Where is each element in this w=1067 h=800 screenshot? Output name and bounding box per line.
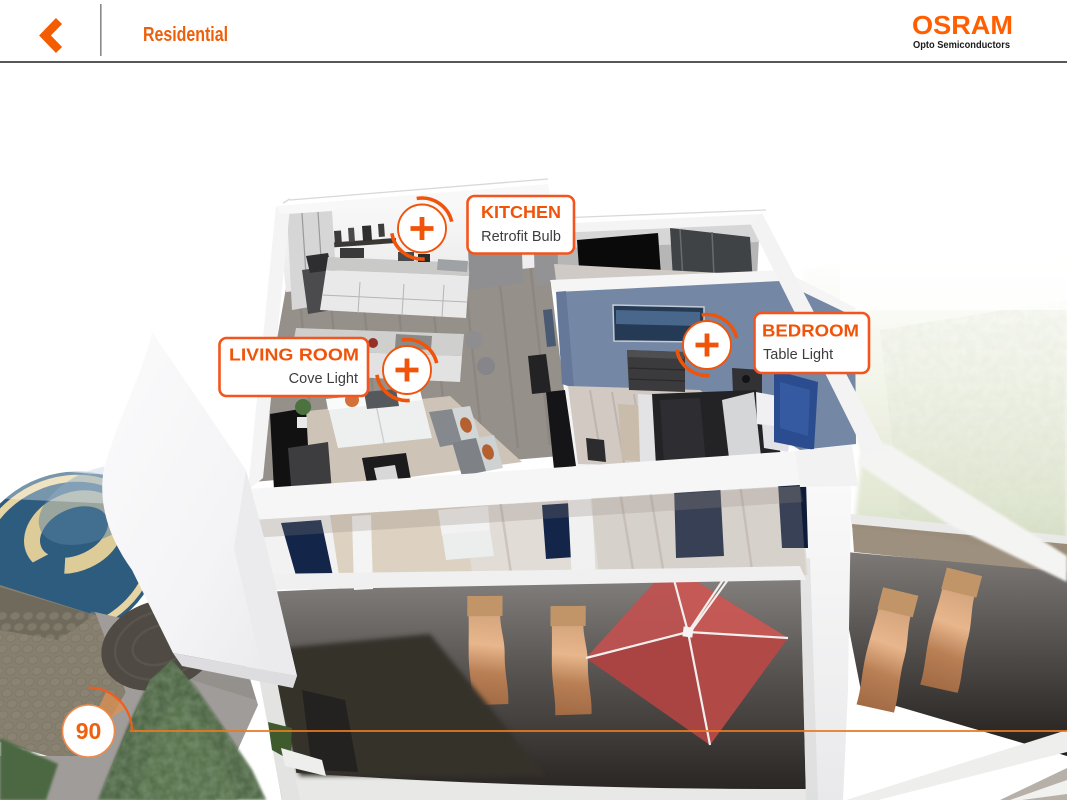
svg-text:Cove Light: Cove Light	[289, 371, 358, 387]
svg-text:Opto Semiconductors: Opto Semiconductors	[913, 39, 1010, 51]
svg-text:KITCHEN: KITCHEN	[481, 202, 561, 222]
svg-text:90: 90	[76, 718, 102, 744]
svg-text:LIVING ROOM: LIVING ROOM	[229, 345, 359, 365]
svg-text:BEDROOM: BEDROOM	[762, 321, 859, 341]
svg-text:Table Light: Table Light	[763, 347, 833, 363]
svg-text:Residential: Residential	[143, 24, 228, 46]
svg-text:Retrofit Bulb: Retrofit Bulb	[481, 229, 561, 245]
svg-text:OSRAM: OSRAM	[912, 10, 1013, 40]
